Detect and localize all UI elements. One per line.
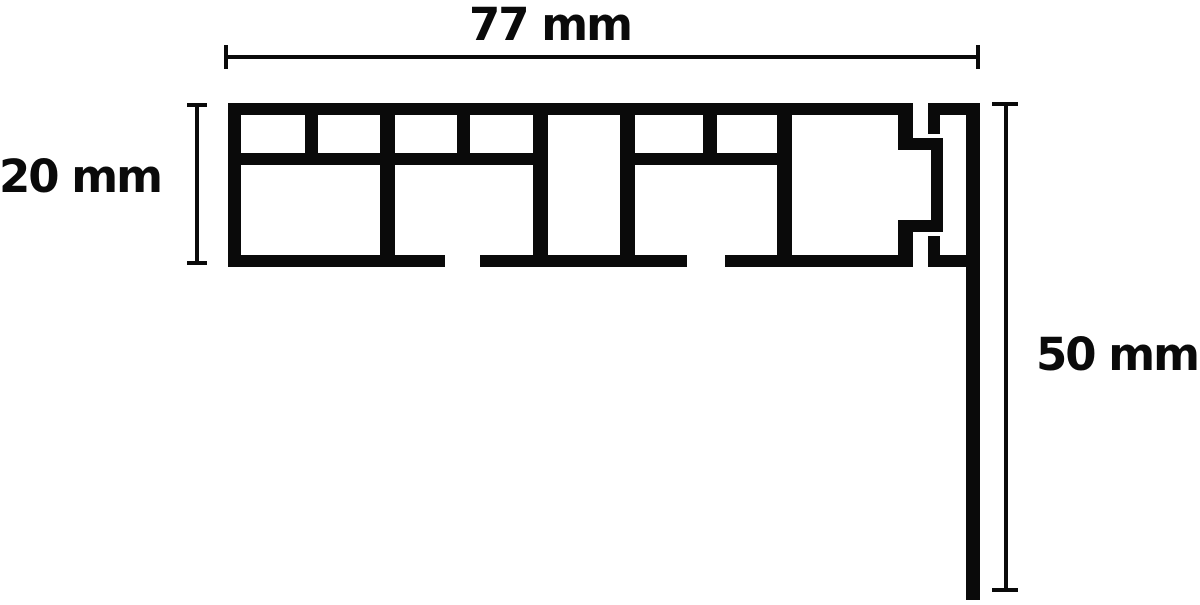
dimension-height: 20 mm — [0, 103, 207, 265]
bottom-wall-segment-2 — [480, 255, 687, 267]
cap-bottom-hook — [928, 236, 940, 255]
drop-dimension-label: 50 mm — [1036, 328, 1198, 381]
width-dim-tick-left — [224, 45, 228, 69]
web-divider-2 — [533, 103, 548, 267]
end-step-bottom — [898, 220, 913, 267]
end-right-wall — [931, 138, 943, 232]
web-divider-3 — [620, 103, 635, 267]
cap-top-hook — [928, 115, 940, 134]
width-dim-tick-right — [976, 45, 980, 69]
bottom-wall-segment-1 — [228, 255, 445, 267]
top-wall — [228, 103, 913, 115]
left-wall — [228, 103, 241, 267]
height-dim-tick-bottom — [187, 261, 207, 265]
width-dim-line — [226, 55, 980, 59]
width-dimension-label: 77 mm — [469, 0, 631, 51]
bottom-wall-segment-3 — [725, 255, 913, 267]
drop-dim-line — [1004, 104, 1008, 592]
profile-body — [228, 103, 943, 267]
web-stub-3 — [703, 115, 717, 165]
profile-diagram: 77 mm 20 mm 50 mm — [0, 0, 1200, 605]
web-divider-4 — [777, 103, 792, 267]
web-stub-2 — [457, 115, 470, 165]
dimension-drop: 50 mm — [992, 102, 1198, 592]
cap-drop-leg — [966, 103, 980, 600]
drop-dim-tick-bottom — [992, 588, 1018, 592]
drop-dim-tick-top — [992, 102, 1018, 106]
web-divider-1 — [380, 115, 395, 255]
web-stub-1 — [305, 115, 318, 165]
height-dimension-label: 20 mm — [0, 150, 161, 203]
diagram-canvas: 77 mm 20 mm 50 mm — [0, 0, 1200, 605]
dimension-width: 77 mm — [224, 0, 980, 69]
height-dim-tick-top — [187, 103, 207, 107]
height-dim-line — [195, 103, 199, 265]
